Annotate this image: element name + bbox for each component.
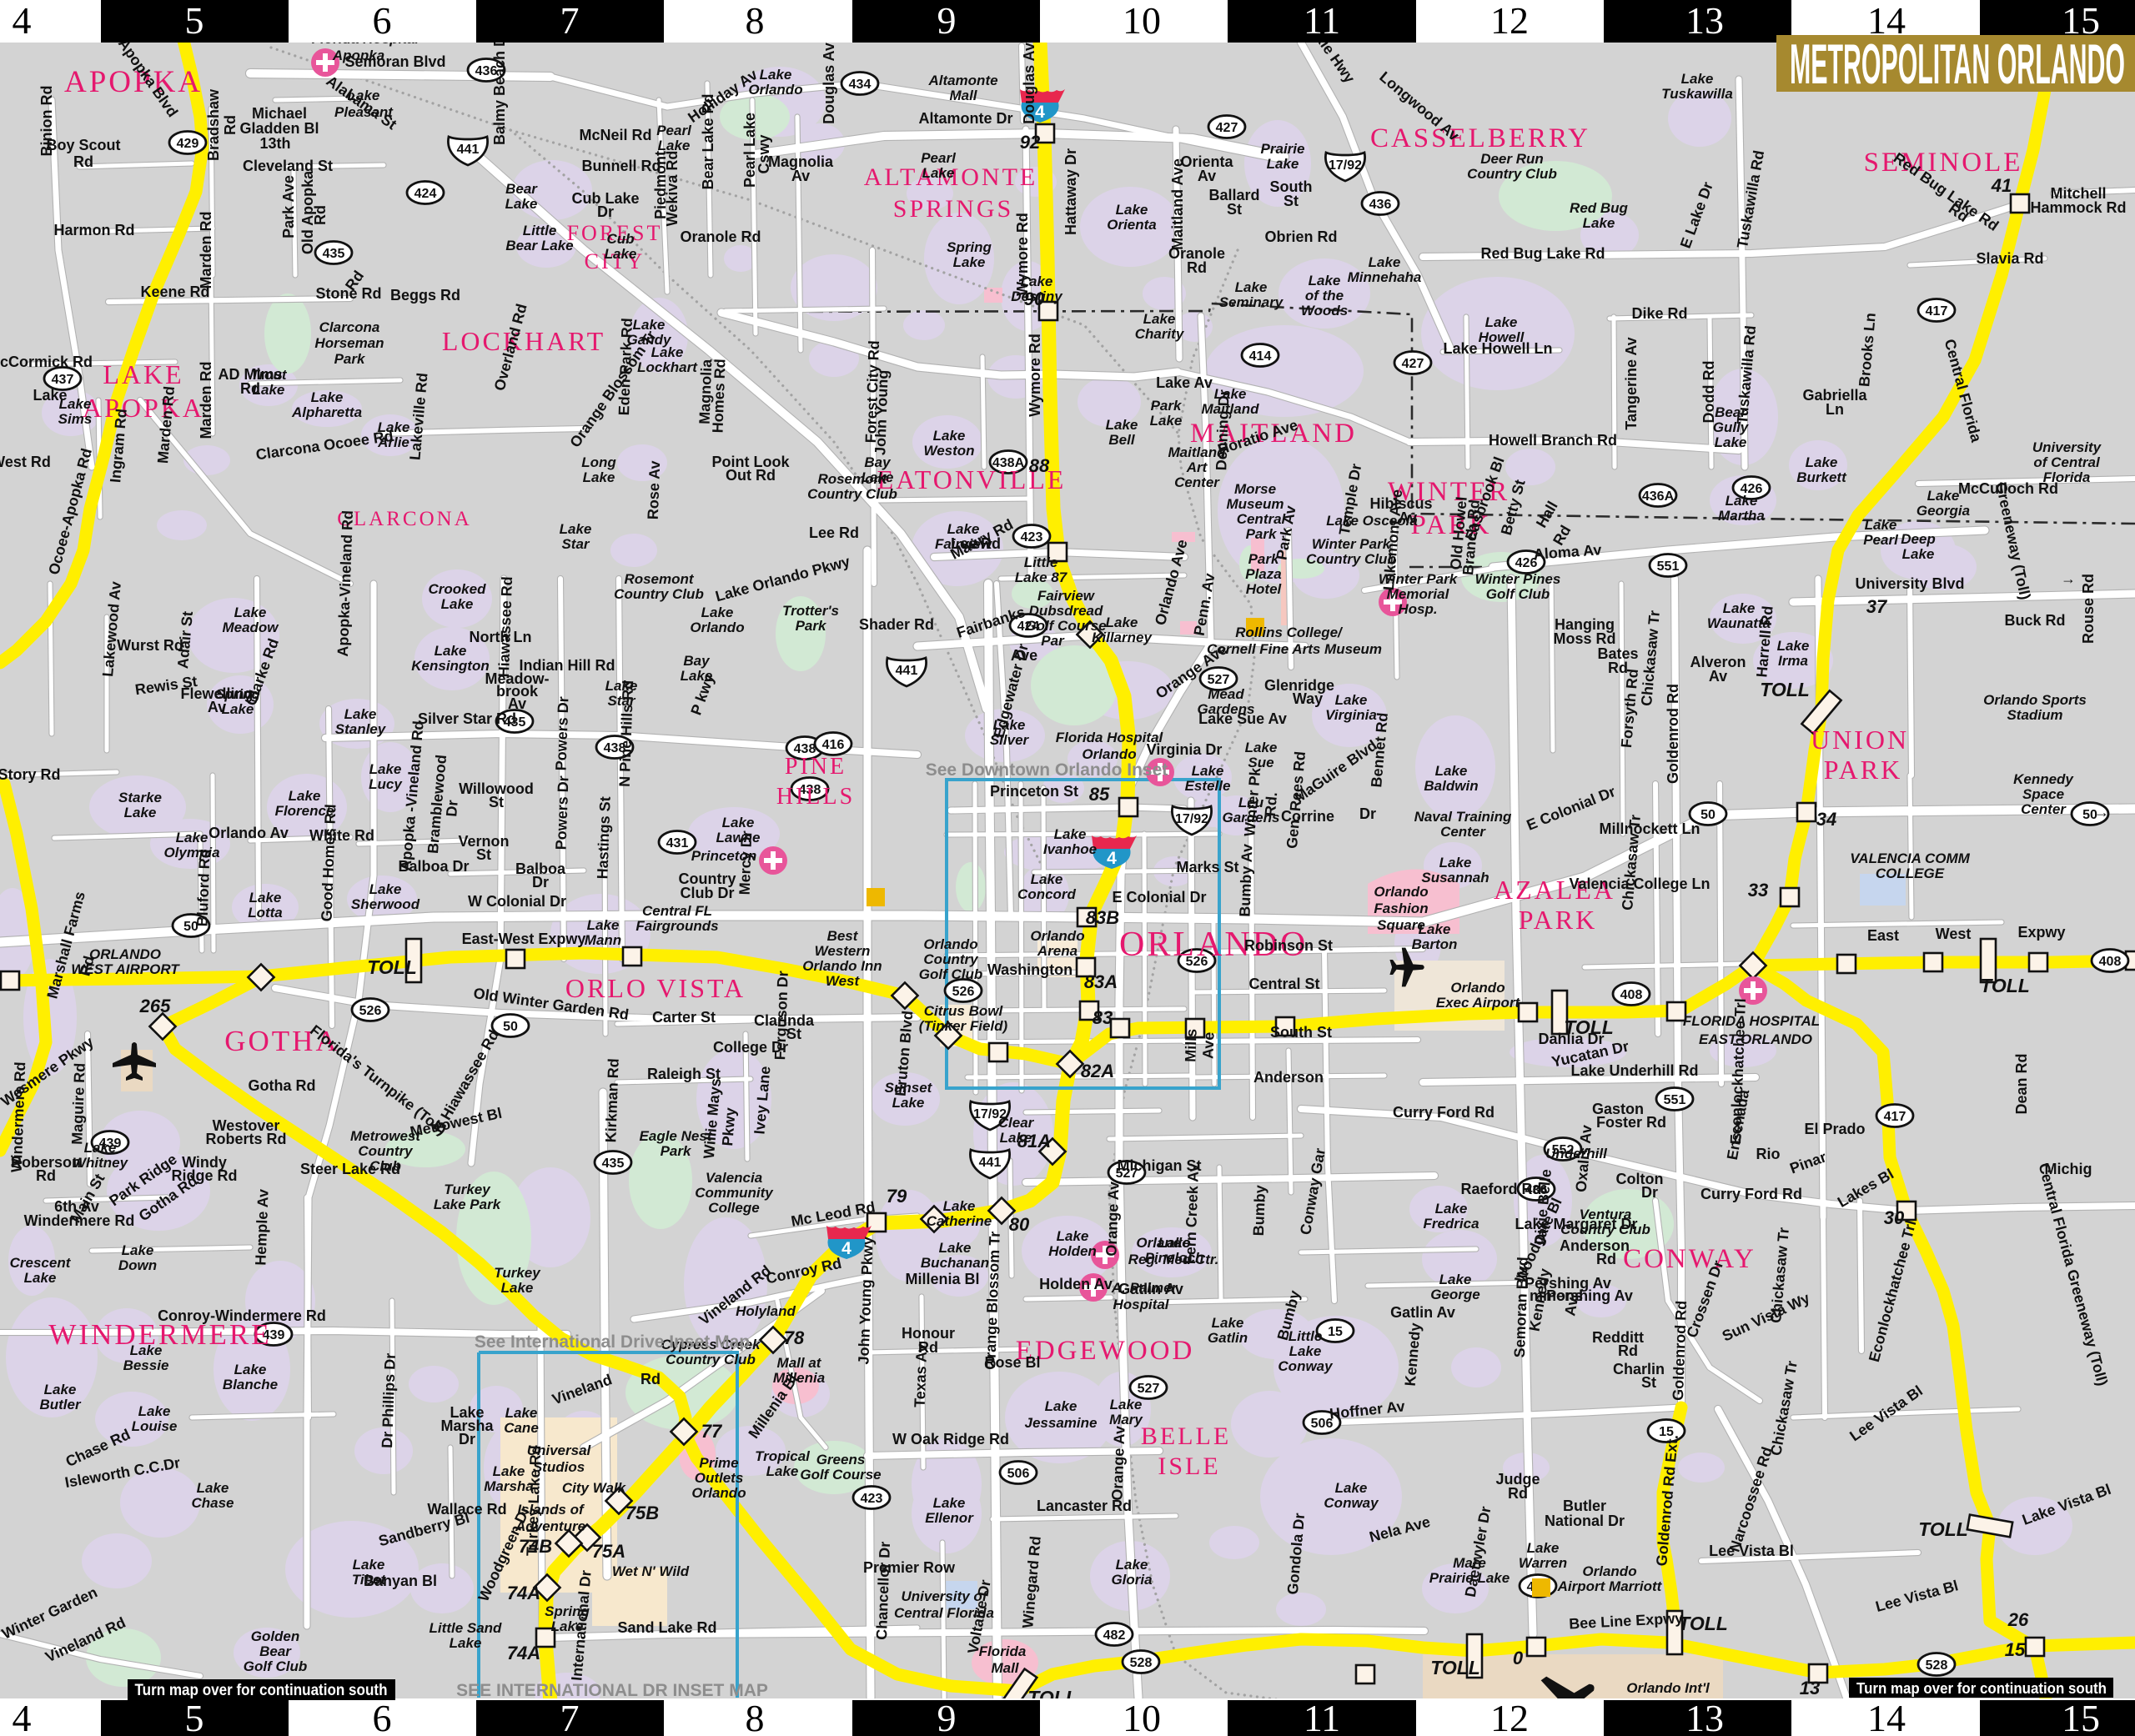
- svg-text:Semoran Blvd: Semoran Blvd: [1511, 1257, 1531, 1358]
- svg-text:Av: Av: [508, 695, 526, 712]
- svg-text:Gardens: Gardens: [1223, 810, 1280, 825]
- svg-text:East: East: [1867, 927, 1899, 944]
- svg-text:E Colonial Dr: E Colonial Dr: [1112, 889, 1206, 906]
- svg-text:Park Ave: Park Ave: [280, 175, 297, 238]
- svg-text:5: 5: [185, 0, 204, 42]
- svg-text:Seminary: Seminary: [1219, 294, 1284, 310]
- svg-text:423: 423: [1021, 530, 1043, 544]
- svg-text:83A: 83A: [1084, 971, 1118, 992]
- svg-text:Lake: Lake: [1927, 488, 1960, 504]
- svg-text:408: 408: [1620, 988, 1643, 1002]
- svg-text:Lake: Lake: [122, 1242, 154, 1258]
- svg-text:Goldenrod Rd: Goldenrod Rd: [1665, 684, 1681, 784]
- svg-text:Lancaster Rd: Lancaster Rd: [1037, 1498, 1132, 1514]
- svg-text:Pkwy: Pkwy: [719, 1107, 739, 1147]
- svg-text:Lake: Lake: [1681, 71, 1714, 87]
- svg-text:COLLEGE: COLLEGE: [1876, 865, 1945, 881]
- svg-text:Mills: Mills: [1182, 1028, 1199, 1062]
- svg-text:Robinson St: Robinson St: [1244, 937, 1333, 954]
- svg-text:Oranole Rd: Oranole Rd: [680, 228, 761, 245]
- svg-text:441: 441: [979, 1156, 1002, 1170]
- svg-text:Ventura: Ventura: [1580, 1207, 1632, 1222]
- svg-text:St: St: [1284, 193, 1299, 209]
- svg-text:Premier Row: Premier Row: [863, 1559, 956, 1576]
- svg-text:Golden: Golden: [251, 1628, 300, 1644]
- svg-text:437: 437: [52, 373, 74, 387]
- svg-text:Millenia Bl: Millenia Bl: [905, 1271, 979, 1287]
- svg-text:408: 408: [2099, 955, 2122, 969]
- svg-text:Rd: Rd: [312, 205, 329, 225]
- svg-text:Country Club: Country Club: [666, 1352, 756, 1367]
- svg-text:Lake: Lake: [1212, 1315, 1244, 1331]
- svg-text:Red Bug Lake Rd: Red Bug Lake Rd: [1480, 245, 1605, 262]
- svg-text:Best: Best: [827, 928, 859, 944]
- svg-text:Charity: Charity: [1135, 326, 1185, 342]
- svg-text:Curry Ford Rd: Curry Ford Rd: [1700, 1186, 1802, 1202]
- svg-text:7: 7: [560, 0, 580, 42]
- svg-text:Holden: Holden: [1048, 1243, 1097, 1259]
- svg-text:ORLANDO: ORLANDO: [89, 946, 161, 962]
- svg-text:Long: Long: [581, 454, 616, 470]
- svg-text:435: 435: [602, 1156, 625, 1171]
- svg-text:441: 441: [896, 664, 918, 678]
- svg-text:St: St: [489, 794, 504, 810]
- svg-text:Kennedy: Kennedy: [2013, 771, 2074, 787]
- svg-text:Valencia College Ln: Valencia College Ln: [1569, 876, 1710, 892]
- svg-text:Plaza: Plaza: [1245, 566, 1281, 582]
- svg-text:6: 6: [373, 1697, 392, 1736]
- svg-text:9: 9: [937, 0, 957, 42]
- svg-text:Altamonte: Altamonte: [927, 73, 997, 88]
- svg-text:Rosemont: Rosemont: [624, 571, 694, 587]
- svg-text:Turn map over for continuation: Turn map over for continuation south: [1856, 1680, 2107, 1697]
- svg-text:TOLL: TOLL: [1678, 1613, 1728, 1634]
- svg-text:Texas Av: Texas Av: [912, 1343, 931, 1407]
- svg-text:11: 11: [1304, 1697, 1340, 1736]
- svg-text:Winter Park: Winter Park: [1312, 536, 1392, 552]
- svg-text:0: 0: [1513, 1648, 1524, 1668]
- svg-text:Lotta: Lotta: [248, 905, 283, 921]
- svg-text:Lake: Lake: [1527, 1540, 1560, 1556]
- svg-text:Lake: Lake: [1723, 600, 1756, 616]
- svg-text:Cub: Cub: [606, 231, 634, 247]
- svg-text:417: 417: [1926, 304, 1948, 319]
- svg-text:Lake: Lake: [44, 1382, 77, 1397]
- svg-text:Country: Country: [358, 1143, 414, 1159]
- svg-text:9: 9: [937, 1697, 957, 1736]
- svg-text:Lake: Lake: [892, 1095, 925, 1111]
- svg-text:Hattaway Dr: Hattaway Dr: [1062, 148, 1079, 235]
- svg-text:Corrine: Corrine: [1281, 808, 1334, 825]
- svg-text:Orlando: Orlando: [1374, 884, 1428, 900]
- svg-text:Hastings St: Hastings St: [594, 796, 613, 880]
- svg-text:Lake: Lake: [1289, 1343, 1322, 1359]
- svg-text:McCormick Rd: McCormick Rd: [0, 354, 93, 370]
- svg-text:Space: Space: [2022, 786, 2064, 802]
- svg-text:Kensington: Kensington: [411, 658, 490, 674]
- svg-text:St: St: [476, 846, 491, 863]
- svg-text:Sunset: Sunset: [885, 1080, 933, 1096]
- svg-text:Bumby: Bumby: [1250, 1185, 1268, 1237]
- svg-text:92: 92: [1020, 132, 1041, 153]
- svg-text:St: St: [1641, 1374, 1656, 1391]
- svg-text:Shader Rd: Shader Rd: [859, 616, 934, 633]
- svg-text:Ln: Ln: [1826, 401, 1844, 418]
- svg-text:423: 423: [861, 1492, 883, 1506]
- svg-text:CLARCONA: CLARCONA: [337, 508, 472, 530]
- svg-text:5: 5: [185, 1697, 204, 1736]
- svg-text:13: 13: [1800, 1678, 1820, 1698]
- svg-text:Georgia: Georgia: [1916, 503, 1970, 519]
- svg-text:Winter Pines: Winter Pines: [1475, 571, 1561, 587]
- svg-text:Lake: Lake: [435, 643, 467, 659]
- svg-text:West Rd: West Rd: [0, 454, 51, 470]
- svg-text:Hosp.: Hosp.: [1398, 601, 1437, 617]
- svg-text:Carter St: Carter St: [652, 1009, 716, 1026]
- svg-text:Underhill: Underhill: [1545, 1146, 1608, 1162]
- svg-text:Wet N' Wild: Wet N' Wild: [612, 1563, 690, 1579]
- svg-text:Lake: Lake: [1335, 692, 1368, 708]
- svg-text:Lake: Lake: [651, 344, 684, 360]
- svg-text:Bessie: Bessie: [123, 1357, 169, 1373]
- svg-text:Lake: Lake: [760, 67, 792, 83]
- svg-text:88: 88: [1029, 455, 1050, 476]
- svg-text:Story Rd: Story Rd: [0, 766, 61, 783]
- svg-text:Buchanan: Buchanan: [921, 1255, 989, 1271]
- svg-text:Lee Vista Bl: Lee Vista Bl: [1709, 1543, 1794, 1559]
- svg-text:4: 4: [13, 1697, 32, 1736]
- svg-text:Morse: Morse: [1234, 481, 1276, 497]
- svg-text:Lake: Lake: [505, 196, 538, 212]
- svg-text:Lake: Lake: [124, 805, 157, 820]
- svg-text:Lake: Lake: [1583, 215, 1615, 231]
- svg-text:TOLL: TOLL: [1564, 1016, 1614, 1038]
- svg-text:8: 8: [746, 0, 765, 42]
- svg-text:Ellenor: Ellenor: [925, 1510, 974, 1526]
- svg-text:551: 551: [1657, 559, 1680, 574]
- svg-text:Park: Park: [1151, 398, 1183, 414]
- svg-text:Lake: Lake: [249, 890, 282, 906]
- svg-text:TOLL: TOLL: [367, 956, 417, 978]
- svg-text:Arena: Arena: [1037, 943, 1078, 959]
- svg-text:74A: 74A: [507, 1583, 540, 1603]
- svg-text:Lake: Lake: [369, 881, 402, 897]
- svg-text:Princeton: Princeton: [691, 848, 756, 864]
- svg-text:Bear: Bear: [259, 1643, 292, 1659]
- svg-text:EAST ORLANDO: EAST ORLANDO: [1699, 1031, 1812, 1047]
- svg-text:Lake: Lake: [130, 1342, 163, 1358]
- svg-text:Lake: Lake: [953, 254, 986, 270]
- svg-text:Wekiva Rd: Wekiva Rd: [664, 151, 681, 227]
- svg-text:Rose Bl: Rose Bl: [984, 1354, 1040, 1371]
- svg-text:Tangerine Av: Tangerine Av: [1623, 337, 1640, 429]
- svg-text:427: 427: [1402, 357, 1424, 371]
- svg-text:Lake: Lake: [1902, 546, 1935, 562]
- svg-text:416: 416: [822, 738, 845, 752]
- svg-text:17/92: 17/92: [1329, 158, 1362, 173]
- svg-text:LOCKHART: LOCKHART: [442, 326, 605, 356]
- svg-text:Orange Av: Orange Av: [1103, 1182, 1122, 1257]
- svg-text:6th Av: 6th Av: [54, 1198, 99, 1215]
- svg-text:Orlando: Orlando: [748, 82, 802, 98]
- svg-text:W Oak Ridge Rd: W Oak Ridge Rd: [892, 1431, 1009, 1448]
- svg-text:See International Drive Inset: See International Drive Inset Map: [475, 1332, 750, 1352]
- svg-text:Gatlin: Gatlin: [1208, 1330, 1248, 1346]
- svg-text:Lake: Lake: [766, 1463, 799, 1479]
- svg-text:George: George: [1430, 1287, 1480, 1302]
- svg-text:Gotha Rd: Gotha Rd: [249, 1077, 316, 1094]
- svg-text:Anderson: Anderson: [1560, 1237, 1630, 1254]
- svg-text:Rio: Rio: [1756, 1146, 1781, 1162]
- svg-text:Anderson: Anderson: [1253, 1069, 1324, 1086]
- svg-text:Florida: Florida: [979, 1643, 1027, 1659]
- svg-text:Meadow: Meadow: [222, 620, 279, 635]
- svg-text:Airport Marriott: Airport Marriott: [1557, 1578, 1663, 1594]
- svg-text:Pearl: Pearl: [921, 150, 957, 166]
- svg-text:7: 7: [560, 1697, 580, 1736]
- svg-text:Lake: Lake: [701, 605, 734, 620]
- svg-text:Orlando Av: Orlando Av: [208, 825, 289, 841]
- svg-text:White Rd: White Rd: [309, 827, 374, 844]
- svg-text:Deep: Deep: [1901, 531, 1936, 547]
- svg-text:Lake: Lake: [441, 596, 474, 612]
- svg-text:80: 80: [1009, 1214, 1030, 1235]
- svg-text:HILLS: HILLS: [776, 784, 855, 810]
- svg-text:Cane: Cane: [504, 1420, 539, 1436]
- svg-text:Orlando Int'l: Orlando Int'l: [1626, 1680, 1711, 1696]
- svg-text:Mall at: Mall at: [777, 1355, 822, 1371]
- svg-text:Mall: Mall: [991, 1660, 1019, 1676]
- svg-text:Orlando Sports: Orlando Sports: [1983, 692, 2087, 708]
- svg-text:527: 527: [1138, 1382, 1160, 1396]
- svg-text:Bunnell Rd: Bunnell Rd: [582, 158, 661, 174]
- svg-text:Lake: Lake: [939, 1240, 972, 1256]
- svg-text:Lake 87: Lake 87: [1015, 569, 1068, 585]
- svg-text:Lake: Lake: [84, 1140, 117, 1156]
- svg-text:Lee Rd: Lee Rd: [951, 535, 1001, 552]
- svg-text:of the: of the: [1305, 288, 1344, 304]
- svg-text:Marks St: Marks St: [1176, 859, 1238, 876]
- svg-text:Rd: Rd: [1596, 1251, 1616, 1267]
- svg-text:Warren: Warren: [1519, 1555, 1567, 1571]
- svg-text:Weston: Weston: [923, 443, 974, 459]
- svg-text:10: 10: [1123, 1697, 1161, 1736]
- svg-text:UNION: UNION: [1811, 725, 1909, 755]
- svg-text:Irma: Irma: [1778, 653, 1808, 669]
- svg-text:4: 4: [13, 0, 32, 42]
- svg-text:Conway: Conway: [1324, 1495, 1379, 1511]
- svg-text:Marsha: Marsha: [484, 1478, 534, 1494]
- svg-text:Lake: Lake: [450, 1635, 482, 1651]
- svg-text:Bear Lake: Bear Lake: [505, 238, 573, 253]
- svg-text:Fairview: Fairview: [1037, 588, 1096, 604]
- svg-text:PARK: PARK: [1519, 905, 1597, 935]
- svg-text:Down: Down: [118, 1257, 157, 1273]
- svg-text:Gladden Bl: Gladden Bl: [239, 120, 319, 137]
- svg-text:506: 506: [1007, 1467, 1030, 1481]
- svg-text:METROPOLITAN ORLANDO: METROPOLITAN ORLANDO: [1790, 33, 2125, 96]
- svg-text:PARK: PARK: [1824, 755, 1902, 785]
- svg-text:(Tinker Field): (Tinker Field): [919, 1018, 1008, 1034]
- svg-text:Lake Howell Ln: Lake Howell Ln: [1443, 340, 1552, 357]
- svg-text:526: 526: [359, 1004, 382, 1018]
- svg-text:Dr: Dr: [532, 874, 549, 891]
- svg-text:Conroy-Windermere Rd: Conroy-Windermere Rd: [158, 1307, 326, 1324]
- svg-text:→: →: [2094, 804, 2109, 820]
- svg-text:Sims: Sims: [58, 411, 93, 427]
- svg-text:Howell Branch Rd: Howell Branch Rd: [1489, 432, 1617, 449]
- svg-text:Mead: Mead: [1208, 686, 1244, 702]
- svg-text:Pearl: Pearl: [1863, 532, 1899, 548]
- svg-text:Wallace Rd: Wallace Rd: [427, 1501, 506, 1518]
- svg-text:Roberts Rd: Roberts Rd: [205, 1131, 286, 1147]
- svg-text:Lake: Lake: [59, 396, 92, 412]
- svg-text:Lake: Lake: [922, 165, 955, 181]
- svg-text:Square: Square: [1377, 917, 1425, 933]
- svg-text:Valencia: Valencia: [706, 1170, 762, 1186]
- svg-text:Lake: Lake: [1116, 202, 1148, 218]
- svg-text:TOLL: TOLL: [1760, 679, 1810, 700]
- svg-text:Country Club: Country Club: [614, 586, 704, 602]
- svg-text:Par: Par: [1041, 633, 1065, 649]
- svg-text:83B: 83B: [1086, 907, 1119, 928]
- svg-text:13th: 13th: [259, 135, 290, 152]
- svg-text:14: 14: [1867, 1697, 1906, 1736]
- svg-text:Lake: Lake: [1439, 1272, 1472, 1287]
- svg-text:Butler: Butler: [39, 1397, 82, 1412]
- svg-text:St: St: [1227, 201, 1242, 218]
- svg-text:Virginia Dr: Virginia Dr: [1147, 741, 1223, 758]
- svg-text:Dr: Dr: [459, 1431, 475, 1448]
- svg-text:Lake: Lake: [1214, 386, 1247, 402]
- svg-text:Trout: Trout: [250, 367, 287, 383]
- svg-text:Lake: Lake: [862, 469, 894, 485]
- svg-text:Mann: Mann: [585, 932, 621, 948]
- svg-text:CASSELBERRY: CASSELBERRY: [1370, 123, 1590, 153]
- svg-text:Rd: Rd: [73, 153, 93, 170]
- svg-text:90: 90: [1024, 288, 1045, 309]
- svg-text:Gloria: Gloria: [1111, 1572, 1152, 1588]
- svg-text:10: 10: [1123, 0, 1161, 42]
- svg-text:Museum: Museum: [1227, 496, 1284, 512]
- svg-text:75B: 75B: [625, 1503, 659, 1523]
- svg-text:Lake: Lake: [353, 1557, 385, 1573]
- svg-text:TOLL: TOLL: [1980, 975, 2030, 996]
- svg-text:Bear: Bear: [1715, 404, 1747, 420]
- svg-text:Pearl: Pearl: [656, 123, 692, 138]
- svg-text:Louise: Louise: [132, 1418, 178, 1434]
- svg-text:Art: Art: [1186, 459, 1208, 475]
- svg-text:Little: Little: [1024, 554, 1058, 570]
- svg-text:Hemple Av: Hemple Av: [252, 1189, 271, 1266]
- svg-text:34: 34: [1816, 809, 1836, 830]
- svg-text:SPRINGS: SPRINGS: [893, 195, 1013, 223]
- svg-text:265: 265: [139, 996, 171, 1016]
- svg-text:SEE INTERNATIONAL DR INSET MAP: SEE INTERNATIONAL DR INSET MAP: [456, 1681, 768, 1700]
- svg-text:Banyan Bl: Banyan Bl: [364, 1573, 437, 1589]
- svg-text:Club Dr: Club Dr: [681, 885, 735, 901]
- svg-text:Center: Center: [1440, 824, 1486, 840]
- svg-text:City Walk: City Walk: [562, 1480, 627, 1496]
- svg-text:Lake: Lake: [1150, 413, 1183, 429]
- svg-text:427: 427: [1216, 121, 1238, 135]
- svg-text:Sue: Sue: [1248, 755, 1273, 770]
- svg-text:Jessamine: Jessamine: [1025, 1415, 1098, 1431]
- svg-text:Ave: Ave: [1199, 1031, 1217, 1059]
- svg-text:Country Club: Country Club: [807, 486, 897, 502]
- svg-text:77: 77: [701, 1421, 723, 1442]
- svg-text:University Blvd: University Blvd: [1855, 575, 1964, 592]
- svg-text:Stone Rd: Stone Rd: [316, 285, 382, 302]
- svg-text:Balmy Beach Dr: Balmy Beach Dr: [491, 30, 508, 145]
- svg-text:Reg. Med Ctr.: Reg. Med Ctr.: [1128, 1252, 1219, 1267]
- svg-text:Raeford Rd: Raeford Rd: [1460, 1181, 1541, 1197]
- svg-text:Boy Scout: Boy Scout: [46, 137, 120, 153]
- svg-text:13: 13: [1685, 1697, 1724, 1736]
- svg-text:Lake: Lake: [587, 917, 620, 933]
- svg-text:Princeton St: Princeton St: [990, 783, 1078, 800]
- svg-text:Country Club: Country Club: [1467, 166, 1557, 182]
- svg-text:Crescent: Crescent: [10, 1255, 72, 1271]
- svg-text:Lake: Lake: [138, 1403, 171, 1419]
- svg-text:528: 528: [1926, 1658, 1948, 1673]
- svg-text:Lake: Lake: [933, 1495, 966, 1511]
- svg-text:Lake: Lake: [1435, 763, 1468, 779]
- svg-text:Bluford Rd: Bluford Rd: [193, 849, 213, 927]
- svg-text:Park: Park: [796, 618, 827, 634]
- svg-text:Bay: Bay: [683, 653, 711, 669]
- svg-text:Rd: Rd: [1187, 259, 1207, 276]
- svg-text:82A: 82A: [1081, 1061, 1114, 1081]
- svg-text:Silver Star Rd: Silver Star Rd: [418, 710, 516, 727]
- svg-text:431: 431: [666, 836, 689, 850]
- svg-text:ORLO VISTA: ORLO VISTA: [565, 973, 746, 1003]
- svg-text:Sherwood: Sherwood: [351, 896, 420, 912]
- svg-text:Bumby Av: Bumby Av: [1236, 844, 1255, 917]
- svg-text:Lake: Lake: [1045, 1398, 1078, 1414]
- svg-text:Tuskawilla: Tuskawilla: [1661, 86, 1733, 102]
- svg-text:Bradshaw: Bradshaw: [205, 88, 222, 161]
- svg-text:LAKE: LAKE: [103, 359, 183, 389]
- svg-text:37: 37: [1866, 596, 1888, 617]
- svg-text:Lee Rd: Lee Rd: [809, 524, 859, 541]
- svg-text:Lake: Lake: [505, 1405, 538, 1421]
- svg-text:13: 13: [1685, 0, 1724, 42]
- svg-text:Orienta: Orienta: [1107, 217, 1157, 233]
- svg-text:Citrus Bowl: Citrus Bowl: [924, 1003, 1004, 1019]
- svg-text:APOPKA: APOPKA: [83, 393, 204, 423]
- svg-text:McNeil Rd: McNeil Rd: [579, 127, 651, 143]
- svg-text:Minnehaha: Minnehaha: [1348, 269, 1422, 285]
- svg-text:Rd: Rd: [640, 1371, 661, 1387]
- svg-text:Chase: Chase: [191, 1495, 234, 1511]
- svg-text:Trotter's: Trotter's: [782, 603, 839, 619]
- svg-text:Chancellor Dr: Chancellor Dr: [873, 1541, 893, 1640]
- svg-text:College: College: [708, 1200, 759, 1216]
- svg-text:Lake: Lake: [1110, 1397, 1143, 1412]
- svg-text:Lake: Lake: [1106, 615, 1138, 630]
- svg-text:Lake: Lake: [551, 1618, 584, 1634]
- svg-text:Balboa Dr: Balboa Dr: [398, 858, 469, 875]
- svg-text:434: 434: [849, 78, 872, 92]
- svg-text:Naval Training: Naval Training: [1414, 809, 1512, 825]
- svg-text:8: 8: [746, 1697, 765, 1736]
- svg-text:6: 6: [373, 0, 392, 42]
- svg-text:Center: Center: [2021, 801, 2067, 817]
- svg-text:Crooked: Crooked: [429, 581, 487, 597]
- svg-text:Butler: Butler: [1563, 1498, 1606, 1514]
- svg-text:Douglas Av: Douglas Av: [821, 43, 837, 124]
